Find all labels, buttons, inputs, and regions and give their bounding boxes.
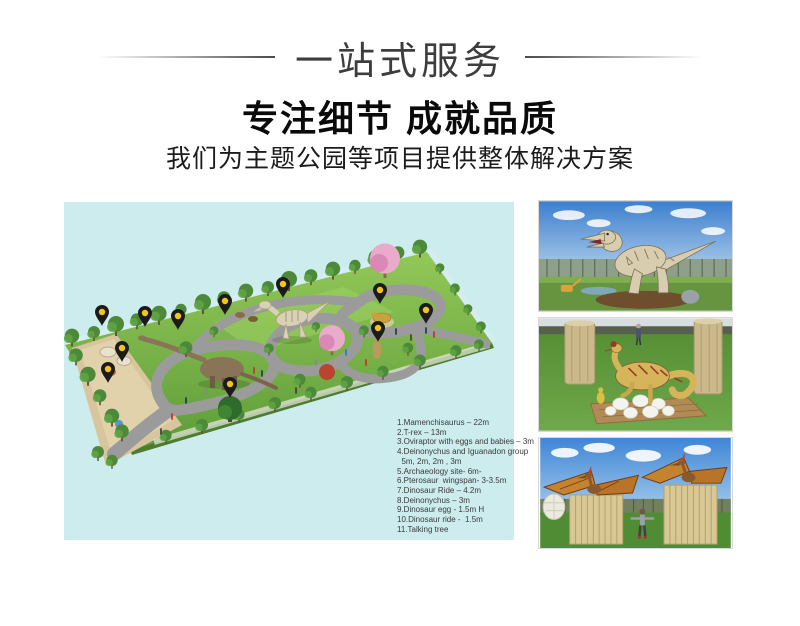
photo-animatronic-t-rex: [538, 200, 733, 312]
page: 一站式服务 专注细节 成就品质 我们为主题公园等项目提供整体解决方案: [0, 0, 800, 626]
legend-item: 6.Pterosaur wingspan- 3-3.5m: [397, 476, 512, 486]
legend-item: 11.Talking tree: [397, 525, 512, 535]
mulch-mound: [596, 291, 692, 309]
banner-title: 一站式服务: [295, 30, 505, 85]
subheadline: 我们为主题公园等项目提供整体解决方案: [0, 139, 800, 175]
headline: 专注细节 成就品质: [0, 90, 800, 142]
egg-dome: [543, 494, 565, 520]
wooden-crate-left: [570, 495, 623, 544]
legend-item: 7.Dinosaur Ride – 4.2m: [397, 486, 512, 496]
photo-oviraptor-with-eggs: [538, 317, 733, 432]
photo-pterosaurs: [538, 437, 733, 549]
legend-item: 9.Dinosaur egg - 1.5m H: [397, 505, 512, 515]
legend-item: 2.T-rex – 13m: [397, 428, 512, 438]
rock: [681, 290, 699, 304]
park-legend: 1.Mamenchisaurus – 22m2.T-rex – 13m3.Ovi…: [397, 418, 512, 534]
legend-item: 3.Oviraptor with eggs and babies – 3m: [397, 437, 512, 447]
wooden-crate-right: [664, 485, 717, 544]
red-bush: [319, 364, 335, 380]
banner-divider-left: [99, 56, 275, 58]
legend-item: 5.Archaeology site- 6m-: [397, 467, 512, 477]
legend-item: 10.Dinosaur ride - 1.5m: [397, 515, 512, 525]
legend-item: 4.Deinonychus and Iguanadon group: [397, 447, 512, 457]
legend-item: 8.Deinonychus – 3m: [397, 496, 512, 506]
legend-item: 5m, 2m, 2m , 3m: [397, 457, 512, 467]
map-pin-icon: [95, 305, 109, 326]
photo-column: [538, 200, 733, 549]
banner-divider-right: [525, 56, 701, 58]
park-plan-panel: 1.Mamenchisaurus – 22m2.T-rex – 13m3.Ovi…: [64, 202, 514, 540]
legend-item: 1.Mamenchisaurus – 22m: [397, 418, 512, 428]
header-banner: 一站式服务: [0, 34, 800, 80]
